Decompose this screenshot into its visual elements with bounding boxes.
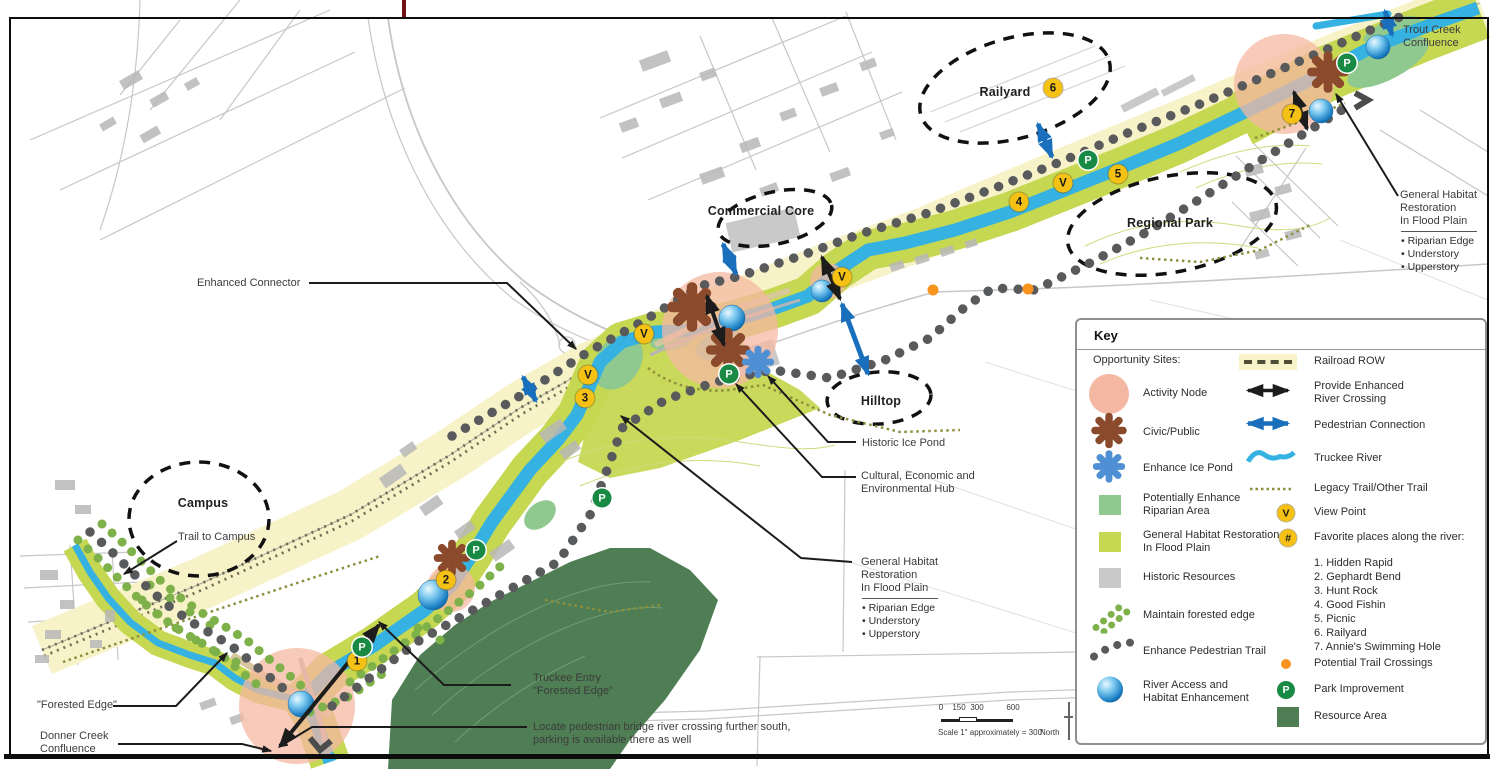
key-label: Potential Trail Crossings	[1314, 657, 1433, 670]
favorite-place-item: 1. Hidden Rapid	[1314, 557, 1393, 571]
key-label: Enhance Pedestrian Trail	[1143, 645, 1266, 658]
trail-crossing-icon	[1281, 659, 1291, 669]
key-label: Activity Node	[1143, 387, 1207, 400]
forested-edge-icon	[1090, 594, 1134, 639]
favorite-place-item: 6. Railyard	[1314, 627, 1367, 641]
favorite-place-item: 7. Annie's Swimming Hole	[1314, 641, 1441, 655]
enhance-ice-pond-icon	[1089, 447, 1129, 492]
key-label: Legacy Trail/Other Trail	[1314, 482, 1428, 495]
key-label: Enhance Ice Pond	[1143, 462, 1233, 475]
view-point-icon: V	[1278, 505, 1295, 522]
callout-trout-creek: Trout Creek Confluence	[1403, 24, 1461, 50]
favorite-place-marker-4: 4	[1010, 193, 1029, 212]
callout-enhanced-connector: Enhanced Connector	[197, 277, 300, 290]
callout-habitat-center: General Habitat Restoration In Flood Pla…	[861, 556, 938, 596]
truckee-river-icon	[1244, 444, 1300, 475]
park-improvement-marker: P	[593, 489, 612, 508]
favorite-place-item: 3. Hunt Rock	[1314, 585, 1378, 599]
callout-habitat-center-bullets: • Riparian Edge • Understory • Upperstor…	[862, 598, 938, 641]
key-label: General Habitat Restoration In Flood Pla…	[1143, 529, 1279, 555]
viewpoint-marker: V	[833, 268, 852, 287]
legacy-trail-icon	[1248, 480, 1296, 498]
trail-crossing-dot	[928, 285, 939, 296]
key-label: Favorite places along the river:	[1314, 531, 1464, 544]
railroad-row-icon	[1239, 354, 1297, 370]
callout-habitat-right: General Habitat Restoration In Flood Pla…	[1400, 189, 1477, 229]
river-access-icon	[1095, 675, 1125, 710]
scale-tick: 150	[952, 703, 965, 712]
callout-pedestrian-bridge: Locate pedestrian bridge river crossing …	[533, 721, 790, 747]
habitat-restoration-icon	[1099, 532, 1121, 552]
favorite-place-marker-5: 5	[1109, 165, 1128, 184]
registration-tick	[402, 0, 406, 17]
scale-caption: Scale 1" approximately = 300'	[938, 728, 1044, 737]
park-improvement-marker: P	[720, 365, 739, 384]
key-label: Park Improvement	[1314, 683, 1404, 696]
park-improvement-marker: P	[1338, 54, 1357, 73]
key-label: Civic/Public	[1143, 426, 1200, 439]
scale-tick: 0	[939, 703, 943, 712]
key-label: Truckee River	[1314, 452, 1382, 465]
zone-label-campus: Campus	[178, 496, 229, 510]
key-label: Maintain forested edge	[1143, 609, 1255, 622]
key-label: View Point	[1314, 506, 1366, 519]
activity-node-icon	[1089, 374, 1129, 414]
riparian-area-icon	[1099, 495, 1121, 515]
viewpoint-marker: V	[635, 325, 654, 344]
key-title: Key	[1094, 328, 1118, 343]
key-label: Railroad ROW	[1314, 355, 1385, 368]
zone-label-railyard: Railyard	[980, 85, 1031, 99]
favorite-place-marker-2: 2	[437, 571, 456, 590]
zone-label-hilltop: Hilltop	[861, 394, 901, 408]
key-label: River Access and Habitat Enhancement	[1143, 679, 1249, 705]
key-label: Pedestrian Connection	[1314, 419, 1425, 432]
park-improvement-icon: P	[1277, 681, 1295, 699]
callout-trail-to-campus: Trail to Campus	[178, 531, 255, 544]
key-label: Historic Resources	[1143, 571, 1235, 584]
resource-area-icon	[1277, 707, 1299, 727]
favorite-place-marker-3: 3	[576, 389, 595, 408]
key-opportunity-header: Opportunity Sites:	[1093, 354, 1180, 366]
zone-label-regional-park: Regional Park	[1127, 216, 1213, 230]
key-label: Resource Area	[1314, 710, 1387, 723]
zone-label-commercial-core: Commercial Core	[708, 204, 815, 218]
viewpoint-marker: V	[579, 366, 598, 385]
favorite-place-item: 4. Good Fishin	[1314, 599, 1386, 613]
north-label: North	[1040, 728, 1060, 737]
park-improvement-marker: P	[353, 638, 372, 657]
park-improvement-marker: P	[467, 541, 486, 560]
viewpoint-marker: V	[1054, 174, 1073, 193]
park-improvement-marker: P	[1079, 151, 1098, 170]
callout-truckee-entry: Truckee Entry "Forested Edge"	[533, 672, 613, 698]
pedestrian-connection-icon	[1240, 417, 1296, 436]
plan-map-sheet: Railyard Commercial Core Regional Park H…	[0, 0, 1493, 769]
map-border-bottom	[4, 754, 1490, 759]
favorite-place-marker-6: 6	[1044, 79, 1063, 98]
key-label: Provide Enhanced River Crossing	[1314, 380, 1404, 406]
north-needle-cross	[1064, 716, 1073, 718]
callout-habitat-right-bullets: • Riparian Edge • Understory • Upperstor…	[1401, 231, 1477, 274]
callout-cultural-hub: Cultural, Economic and Environmental Hub	[861, 470, 975, 496]
scale-segment	[959, 717, 977, 722]
scale-tick: 600	[1006, 703, 1019, 712]
favorite-places-icon: #	[1280, 530, 1297, 547]
favorite-place-item: 5. Picnic	[1314, 613, 1356, 627]
key-label: Potentially Enhance Riparian Area	[1143, 492, 1240, 518]
callout-historic-ice-pond: Historic Ice Pond	[862, 437, 945, 450]
scale-segment	[977, 719, 1013, 722]
callout-donner-creek: Donner Creek Confluence	[40, 730, 108, 756]
pedestrian-trail-icon	[1090, 637, 1138, 668]
callout-forested-edge: "Forested Edge"	[37, 699, 117, 712]
river-crossing-icon	[1240, 384, 1296, 403]
north-needle	[1068, 702, 1070, 740]
map-key: Key Opportunity Sites: Activity Node Civ…	[1075, 318, 1487, 745]
historic-resources-icon	[1099, 568, 1121, 588]
favorite-place-marker-7: 7	[1283, 105, 1302, 124]
scale-tick: 300	[970, 703, 983, 712]
favorite-place-item: 2. Gephardt Bend	[1314, 571, 1401, 585]
scale-segment	[941, 719, 959, 722]
key-divider	[1077, 349, 1485, 350]
trail-crossing-dot	[1023, 284, 1034, 295]
